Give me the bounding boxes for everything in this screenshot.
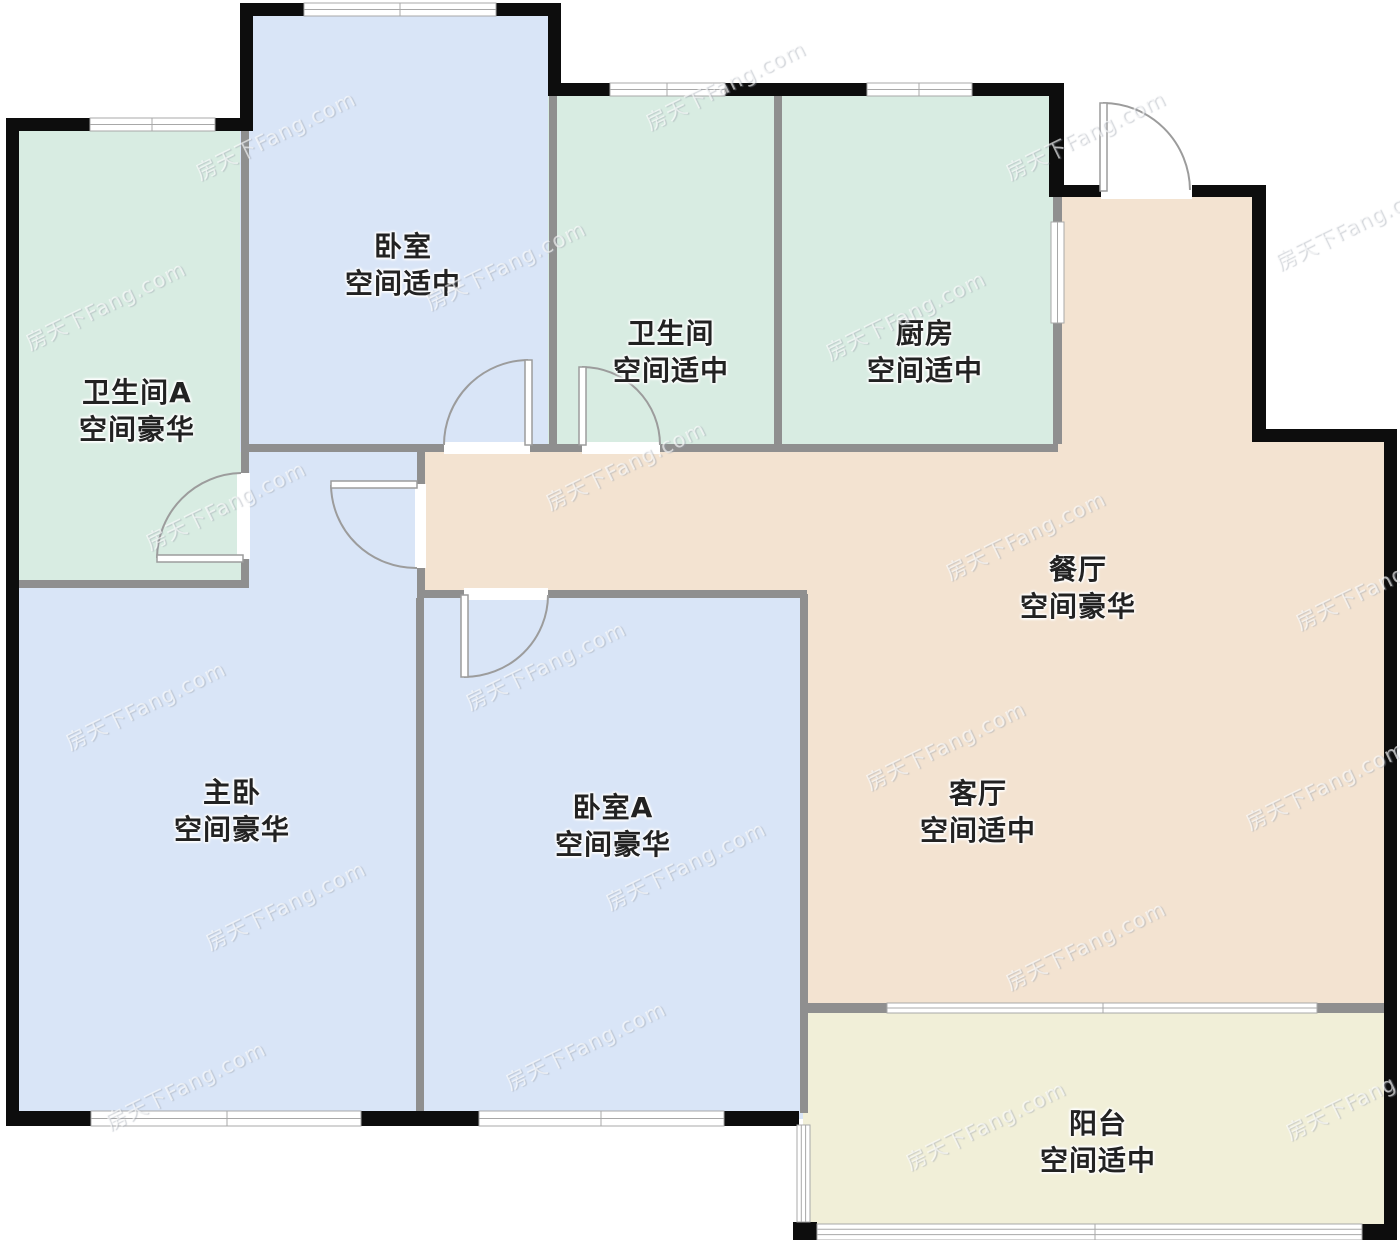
- room-name: 卫生间: [613, 315, 729, 352]
- wall-bathroom-kitchen-divider: [774, 96, 782, 444]
- floor-plan-drawing: [0, 0, 1400, 1240]
- room-name: 主卧: [174, 774, 290, 811]
- room-name: 卧室A: [555, 789, 671, 826]
- room-rating: 空间豪华: [1020, 588, 1136, 625]
- room-label-living: 客厅 空间适中: [920, 775, 1036, 849]
- window-bathroom-top: [610, 83, 725, 96]
- wall-bedroom-bathroom-divider: [549, 96, 557, 444]
- opening-bathroom-a-door: [237, 473, 250, 559]
- window-master-bottom: [91, 1111, 361, 1126]
- window-bedroom-a-bottom: [479, 1111, 724, 1126]
- wall-bedroom-a-right: [800, 594, 808, 1113]
- window-living-balcony: [887, 1003, 1317, 1013]
- room-label-dining: 餐厅 空间豪华: [1020, 551, 1136, 625]
- opening-bedroom-a-door: [464, 588, 548, 600]
- opening-entry-door: [1101, 183, 1192, 199]
- railing-balcony-left: [797, 1125, 810, 1222]
- room-label-bedroom: 卧室 空间适中: [345, 228, 461, 302]
- wall-bathroom-a-bottom: [19, 580, 241, 588]
- room-name: 卧室: [345, 228, 461, 265]
- room-name: 卫生间A: [79, 374, 195, 411]
- window-kitchen-top: [867, 83, 972, 96]
- door-leaf-entry: [1100, 103, 1107, 191]
- wall-bedroom-left: [240, 3, 253, 131]
- opening-bathroom-door: [582, 442, 660, 454]
- room-area-bathroom-a: [6, 118, 253, 588]
- room-rating: 空间适中: [345, 265, 461, 302]
- opening-bedroom-door: [444, 442, 530, 454]
- room-area-kitchen: [782, 83, 1064, 452]
- door-entry: [1100, 103, 1190, 191]
- room-rating: 空间适中: [920, 812, 1036, 849]
- room-label-balcony: 阳台 空间适中: [1040, 1105, 1156, 1179]
- door-leaf-bathroom-a: [157, 555, 243, 562]
- room-name: 厨房: [867, 315, 983, 352]
- wall-master-bedroom-a-divider: [416, 598, 424, 1111]
- floor-plan: 卧室 空间适中 卫生间A 空间豪华 卫生间 空间适中 厨房 空间适中 餐厅 空间…: [0, 0, 1400, 1240]
- room-label-bedroom-a: 卧室A 空间豪华: [555, 789, 671, 863]
- room-name: 客厅: [920, 775, 1036, 812]
- opening-master-door: [415, 484, 426, 568]
- room-label-bathroom: 卫生间 空间适中: [613, 315, 729, 389]
- room-name: 阳台: [1040, 1105, 1156, 1142]
- wall-outer-step: [1252, 429, 1397, 442]
- room-rating: 空间适中: [867, 352, 983, 389]
- wall-outer-right-upper: [1252, 185, 1266, 442]
- railing-balcony-bottom: [817, 1224, 1362, 1240]
- room-rating: 空间适中: [1040, 1142, 1156, 1179]
- wall-kitchen-right: [1049, 83, 1064, 197]
- door-leaf-bedroom: [525, 360, 532, 445]
- room-label-bathroom-a: 卫生间A 空间豪华: [79, 374, 195, 448]
- room-rating: 空间豪华: [174, 811, 290, 848]
- wall-balcony-corner-right: [1362, 1224, 1397, 1240]
- door-leaf-bathroom: [579, 367, 586, 445]
- room-rating: 空间豪华: [555, 826, 671, 863]
- window-kitchen-dining-hatch: [1051, 222, 1064, 323]
- window-bedroom-top: [304, 3, 496, 16]
- room-name: 餐厅: [1020, 551, 1136, 588]
- room-rating: 空间豪华: [79, 411, 195, 448]
- room-label-kitchen: 厨房 空间适中: [867, 315, 983, 389]
- room-rating: 空间适中: [613, 352, 729, 389]
- room-label-master-bedroom: 主卧 空间豪华: [174, 774, 290, 848]
- door-leaf-bedroom-a: [461, 595, 468, 677]
- wall-bedroom-right: [548, 3, 561, 96]
- door-leaf-master-bedroom: [331, 481, 417, 488]
- wall-outer-left: [6, 118, 19, 1126]
- wall-outer-right: [1384, 429, 1397, 1240]
- window-bathroom-a-top: [90, 118, 215, 131]
- wall-balcony-corner-left: [793, 1222, 817, 1240]
